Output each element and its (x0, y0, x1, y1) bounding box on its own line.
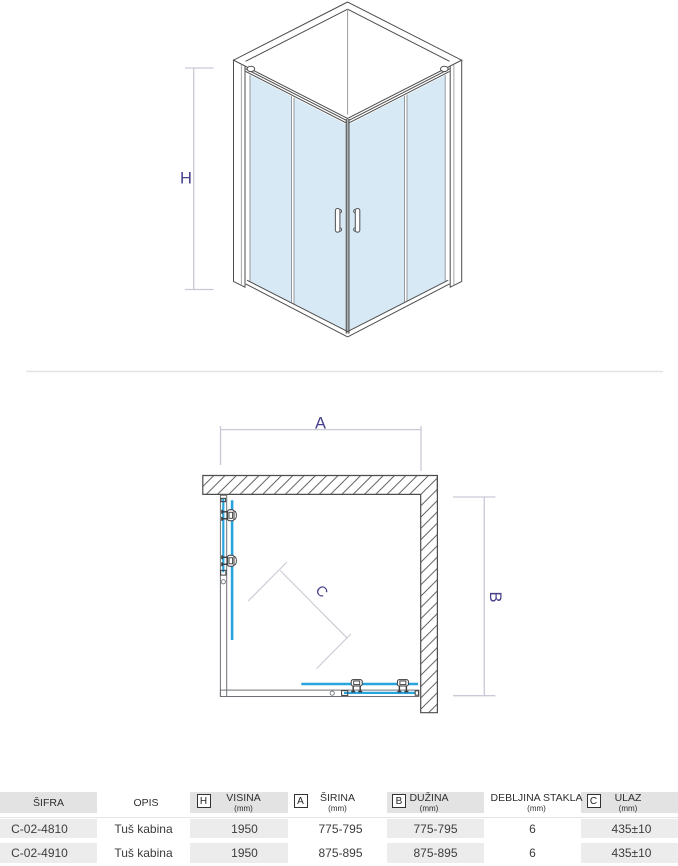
svg-text:H: H (180, 170, 192, 188)
svg-text:B: B (486, 591, 504, 602)
svg-text:C: C (312, 583, 331, 602)
svg-text:A: A (315, 415, 326, 433)
